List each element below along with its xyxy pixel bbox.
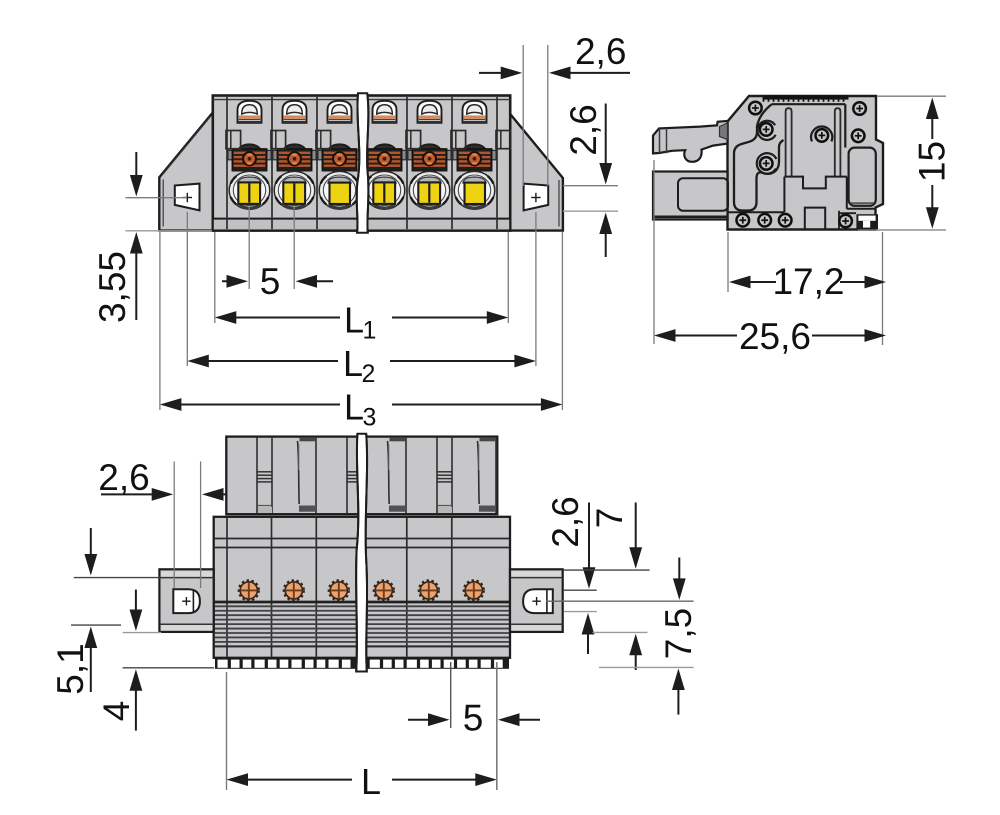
svg-text:2,6: 2,6: [545, 496, 586, 547]
svg-text:2,6: 2,6: [98, 457, 149, 498]
svg-text:L: L: [343, 343, 363, 384]
svg-text:L: L: [361, 761, 381, 802]
svg-text:L: L: [344, 386, 364, 427]
svg-text:7: 7: [589, 508, 630, 529]
svg-text:7,5: 7,5: [658, 608, 699, 659]
svg-text:5: 5: [260, 261, 281, 302]
svg-text:5: 5: [463, 698, 484, 739]
svg-text:15: 15: [912, 141, 953, 182]
svg-text:1: 1: [363, 317, 377, 345]
svg-text:17,2: 17,2: [772, 261, 844, 302]
svg-text:2: 2: [362, 360, 376, 388]
svg-text:3: 3: [363, 404, 377, 432]
svg-text:3,55: 3,55: [92, 251, 133, 323]
svg-text:5,1: 5,1: [50, 643, 91, 694]
svg-text:2,6: 2,6: [575, 31, 626, 72]
svg-text:25,6: 25,6: [739, 316, 811, 357]
svg-text:L: L: [344, 299, 364, 340]
svg-text:4: 4: [96, 701, 137, 722]
svg-text:2,6: 2,6: [563, 104, 604, 155]
